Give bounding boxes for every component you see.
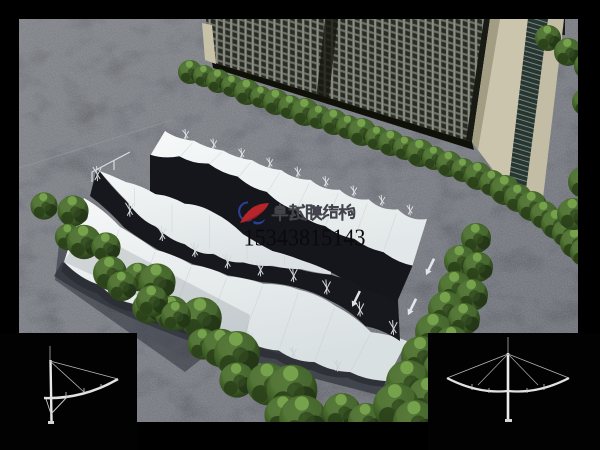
svg-text:15343815143: 15343815143 <box>244 225 366 252</box>
